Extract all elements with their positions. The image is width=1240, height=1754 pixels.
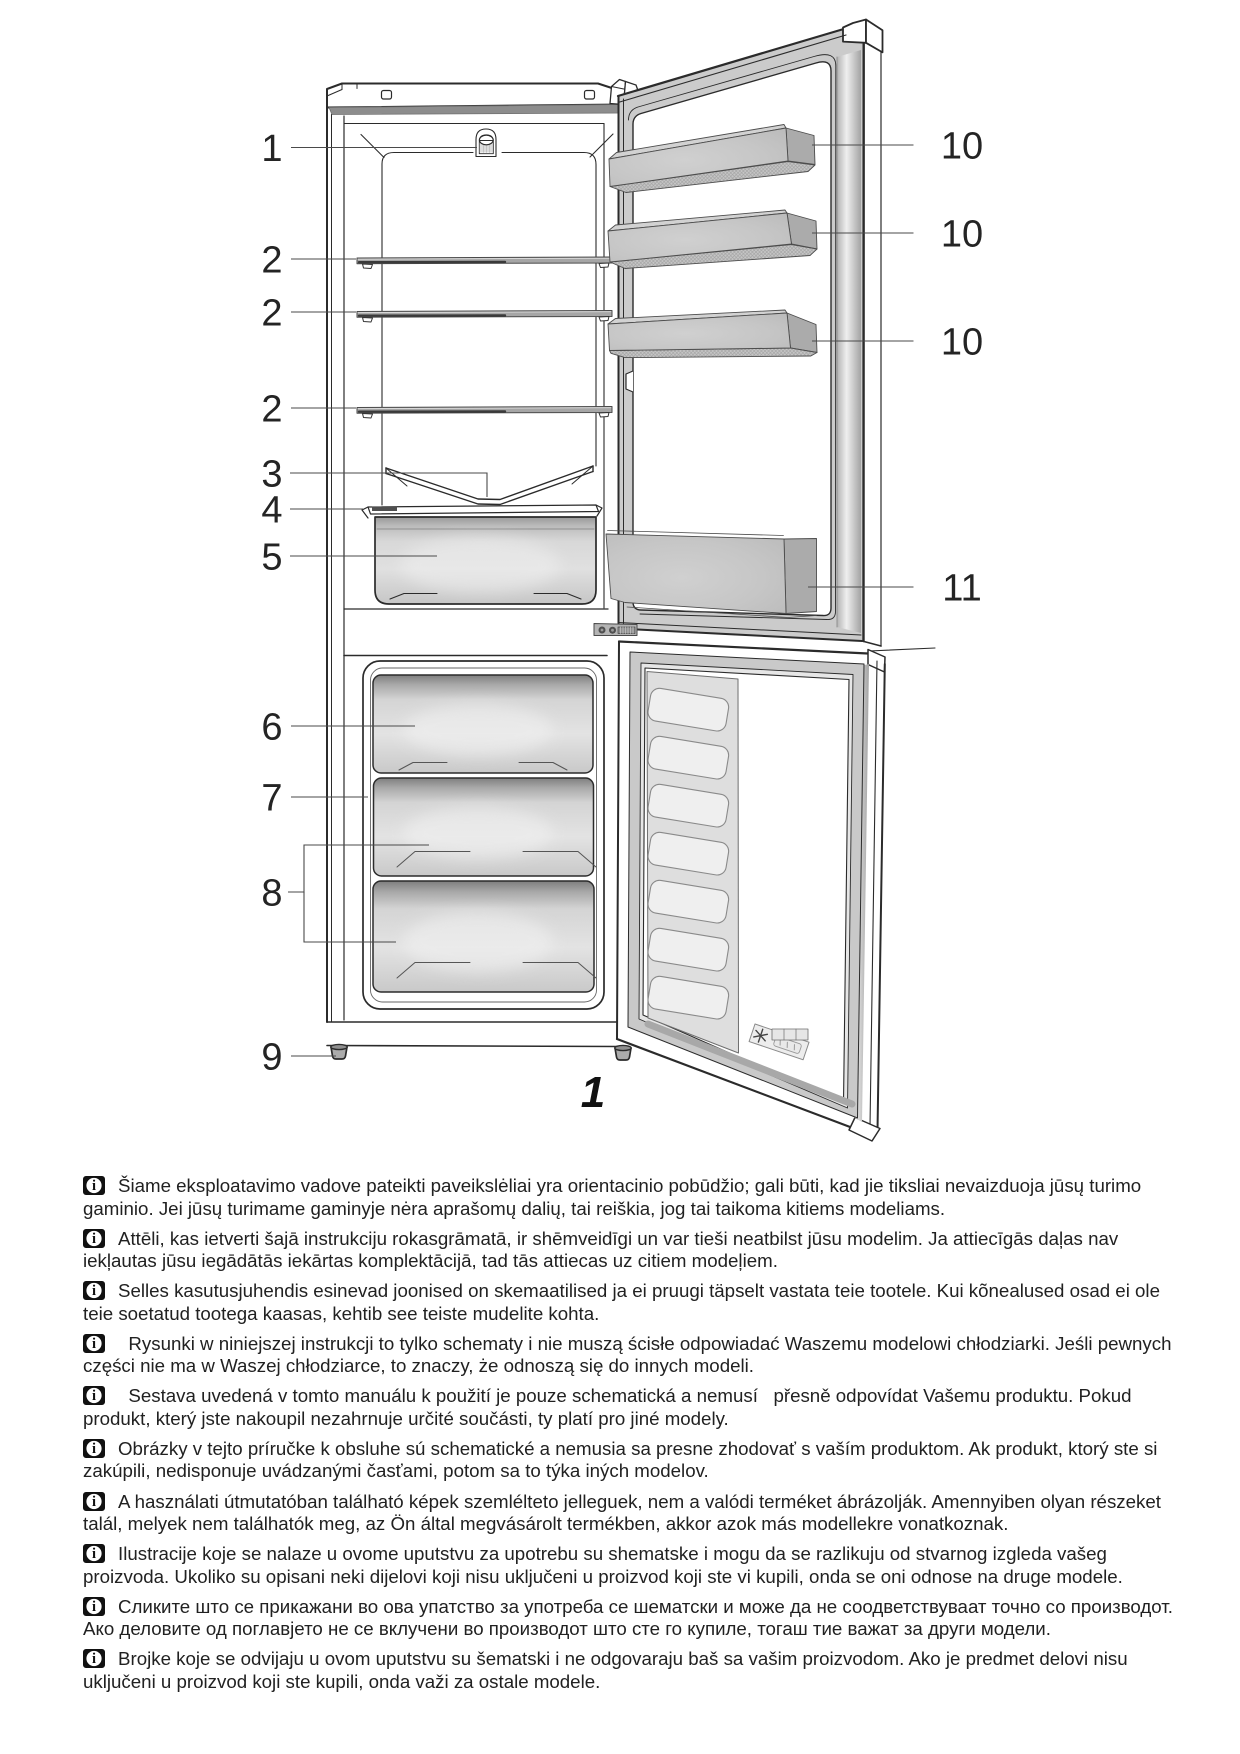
svg-text:i: i	[92, 1178, 96, 1194]
svg-text:i: i	[92, 1441, 96, 1457]
svg-text:6: 6	[261, 707, 282, 749]
svg-text:10: 10	[941, 126, 983, 168]
svg-text:i: i	[92, 1599, 96, 1615]
svg-text:8: 8	[261, 873, 282, 915]
svg-text:i: i	[92, 1283, 96, 1299]
svg-text:i: i	[92, 1494, 96, 1510]
svg-text:4: 4	[261, 490, 282, 532]
svg-text:i: i	[92, 1231, 96, 1247]
svg-text:i: i	[92, 1389, 96, 1405]
svg-text:7: 7	[261, 778, 282, 820]
svg-text:1: 1	[581, 1068, 605, 1117]
svg-text:11: 11	[942, 568, 981, 610]
svg-text:i: i	[92, 1336, 96, 1352]
svg-text:i: i	[92, 1546, 96, 1562]
svg-text:9: 9	[261, 1037, 282, 1079]
svg-text:2: 2	[261, 240, 282, 282]
svg-text:2: 2	[261, 293, 282, 335]
svg-text:2: 2	[261, 389, 282, 431]
svg-text:5: 5	[261, 537, 282, 579]
svg-text:i: i	[92, 1652, 96, 1668]
svg-text:1: 1	[261, 128, 282, 170]
svg-text:10: 10	[941, 214, 983, 256]
svg-text:10: 10	[941, 322, 983, 364]
